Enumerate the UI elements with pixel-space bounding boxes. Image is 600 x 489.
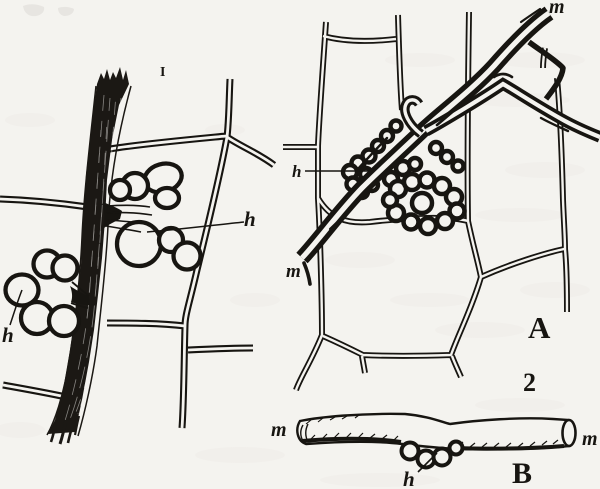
svg-text:m: m [582, 428, 598, 450]
svg-text:h: h [244, 207, 256, 231]
svg-text:2: 2 [523, 368, 536, 397]
svg-text:A: A [528, 310, 551, 345]
svg-text:m: m [286, 261, 301, 282]
svg-text:m: m [549, 0, 565, 18]
svg-text:h: h [292, 162, 301, 181]
svg-text:I: I [160, 65, 165, 80]
svg-text:B: B [512, 457, 532, 489]
svg-text:h: h [2, 323, 14, 347]
svg-text:h: h [403, 467, 415, 489]
svg-text:m: m [271, 419, 287, 441]
